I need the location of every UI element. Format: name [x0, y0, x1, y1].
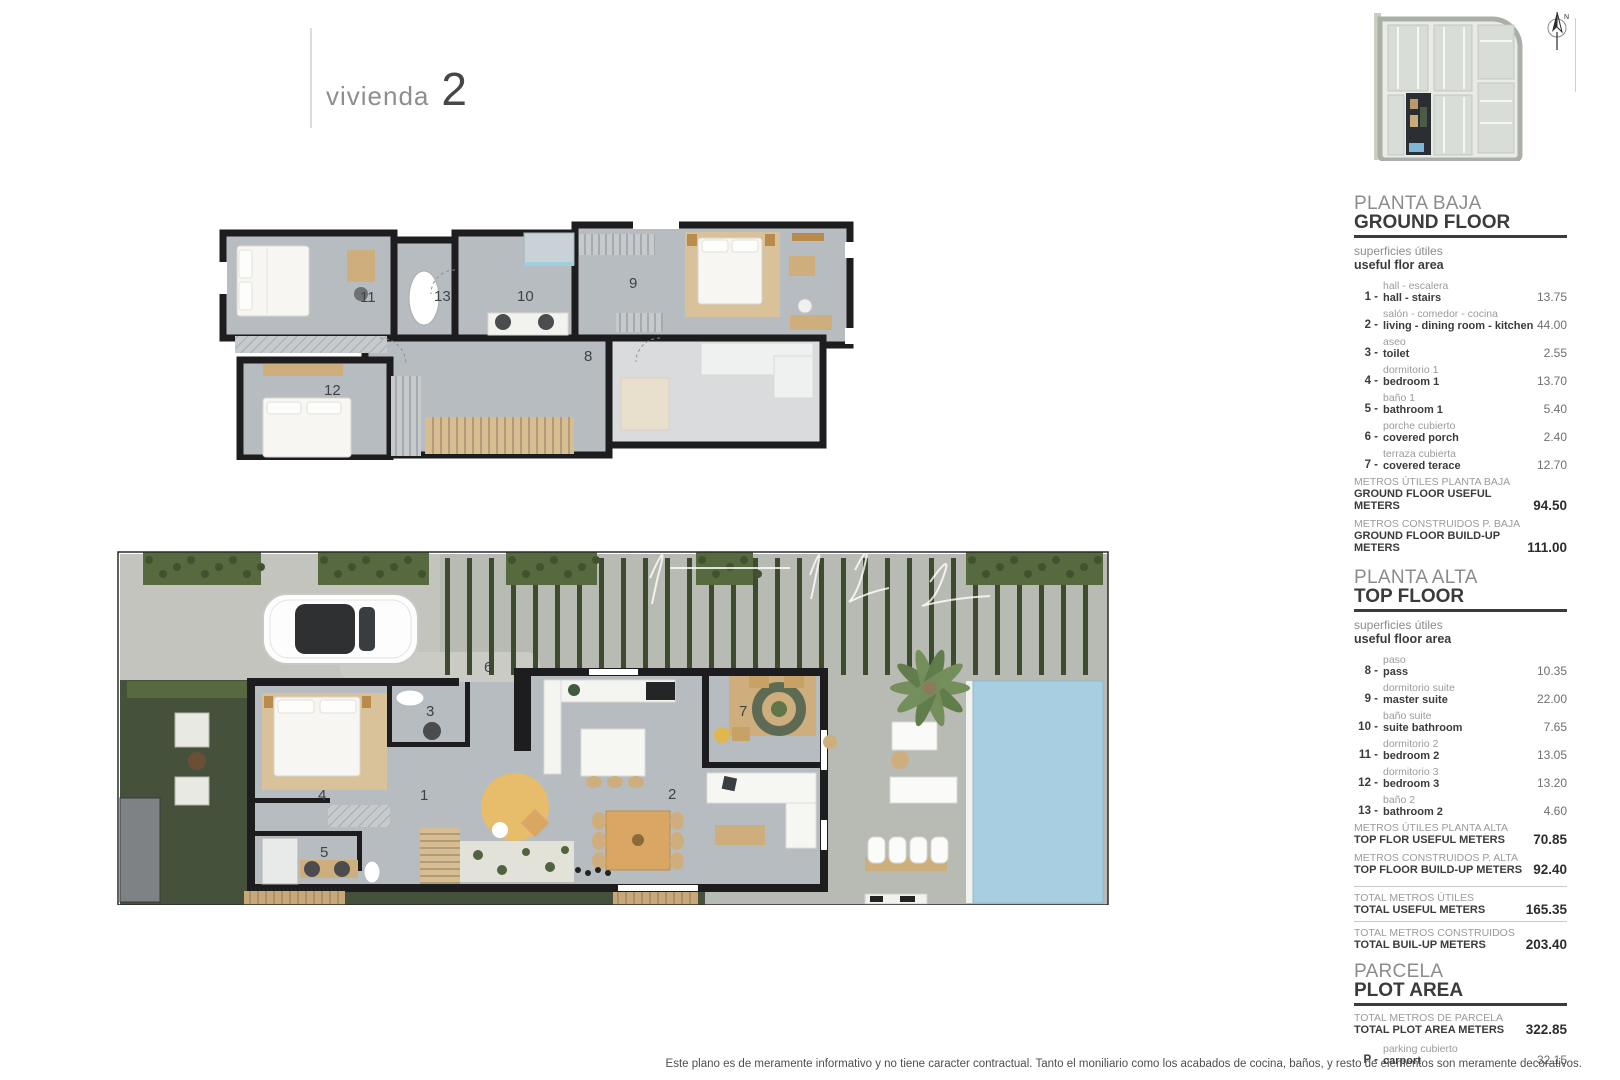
area-item-number: 4 - [1354, 375, 1383, 388]
area-total-label-en: TOP FLOOR BUILD-UP METERS [1354, 864, 1533, 876]
room-label-4: 4 [318, 787, 326, 804]
shower-glass [524, 262, 574, 266]
area-item-label-es: aseo [1383, 337, 1544, 348]
area-item-labels: dormitorio suitemaster suite [1383, 683, 1537, 706]
pouf [492, 822, 508, 838]
grand-totals: TOTAL METROS ÚTILESTOTAL USEFUL METERS16… [1354, 886, 1567, 956]
area-items: 8 -pasopass10.359 -dormitorio suitemaste… [1354, 655, 1567, 818]
area-total-row: TOTAL METROS CONSTRUIDOSTOTAL BUIL-UP ME… [1354, 921, 1567, 956]
side-rule [1575, 18, 1576, 92]
car [263, 594, 418, 664]
title-divider [310, 28, 312, 128]
area-total-label-es: METROS ÚTILES PLANTA ALTA [1354, 823, 1533, 834]
desk-chair [798, 299, 812, 313]
desk [790, 315, 832, 330]
area-item-labels: aseotoilet [1383, 337, 1544, 360]
area-item-label-es: baño 2 [1383, 795, 1544, 806]
siteplan-pool [1409, 143, 1424, 152]
wardrobe-hatch [616, 313, 663, 332]
area-item-label-es: baño 1 [1383, 393, 1544, 404]
area-total-value: 203.40 [1526, 938, 1567, 951]
area-total-row: TOTAL METROS DE PARCELATOTAL PLOT AREA M… [1354, 1013, 1567, 1036]
area-total-label-en: TOTAL BUIL-UP METERS [1354, 939, 1526, 951]
area-item-labels: pasopass [1383, 655, 1537, 678]
area-item-labels: baño suitesuite bathroom [1383, 711, 1544, 734]
area-item-label-en: living - dining room - kitchen [1383, 320, 1537, 332]
north-compass-icon: N [1543, 10, 1577, 52]
area-total-row: METROS CONSTRUIDOS P. ALTATOP FLOOR BUIL… [1354, 853, 1567, 876]
title-word: vivienda [326, 81, 429, 112]
area-items: 1 -hall - escalerahall - stairs13.752 -s… [1354, 281, 1567, 472]
area-total-label-es: TOTAL METROS CONSTRUIDOS [1354, 928, 1526, 939]
shower [524, 233, 574, 265]
area-item-value: 13.20 [1537, 777, 1567, 790]
area-item-number: 3 - [1354, 347, 1383, 360]
area-item-label-es: dormitorio 3 [1383, 767, 1537, 778]
area-item-number: 6 - [1354, 431, 1383, 444]
room-label-9: 9 [629, 275, 637, 292]
washbasin [396, 690, 424, 706]
area-item-value: 7.65 [1544, 721, 1567, 734]
hedge [127, 681, 251, 698]
area-item-row: 8 -pasopass10.35 [1354, 655, 1567, 678]
area-item-row: 4 -dormitorio 1bedroom 113.70 [1354, 365, 1567, 388]
area-item-labels: dormitorio 2bedroom 2 [1383, 739, 1537, 762]
area-total-row: METROS ÚTILES PLANTA BAJAGROUND FLOOR US… [1354, 477, 1567, 512]
area-total-labels: TOTAL METROS ÚTILESTOTAL USEFUL METERS [1354, 893, 1526, 916]
area-item-row: 13 -baño 2bathroom 24.60 [1354, 795, 1567, 818]
subtitle-en: useful floor area [1354, 632, 1567, 646]
area-item-label-es: porche cubierto [1383, 421, 1544, 432]
area-total-row: TOTAL METROS ÚTILESTOTAL USEFUL METERS16… [1354, 886, 1567, 921]
subtitle-es: superficies útiles [1354, 619, 1567, 632]
area-item-label-en: suite bathroom [1383, 722, 1544, 734]
section-rule [1354, 1003, 1567, 1006]
area-total-label-es: TOTAL METROS ÚTILES [1354, 893, 1526, 904]
area-total-label-es: METROS CONSTRUIDOS P. ALTA [1354, 853, 1533, 864]
area-item-label-en: bedroom 3 [1383, 778, 1537, 790]
stairs [425, 417, 574, 454]
bed-bedroom1 [262, 693, 387, 790]
panel-section-plot: PARCELAPLOT AREATOTAL METROS DE PARCELAT… [1354, 962, 1567, 1067]
area-total-label-en: TOTAL PLOT AREA METERS [1354, 1024, 1526, 1036]
area-item-label-es: salón - comedor - cocina [1383, 309, 1537, 320]
wardrobe-hatch [579, 234, 655, 255]
area-item-value: 5.40 [1544, 403, 1567, 416]
area-item-labels: dormitorio 3bedroom 3 [1383, 767, 1537, 790]
area-total-label-en: GROUND FLOOR BUILD-UP METERS [1354, 530, 1527, 554]
floor-plan-ground-floor: 1 2 3 4 5 6 7 [110, 530, 1110, 905]
area-item-number: 11 - [1354, 749, 1383, 762]
room-label-13: 13 [434, 288, 451, 305]
armchair [789, 256, 815, 276]
area-item-number: 2 - [1354, 319, 1383, 332]
section-subtitle: superficies útilesuseful floor area [1354, 619, 1567, 646]
area-item-label-en: covered porch [1383, 432, 1544, 444]
area-total-value: 92.40 [1533, 863, 1567, 876]
area-item-row: 12 -dormitorio 3bedroom 313.20 [1354, 767, 1567, 790]
area-item-label-en: bathroom 2 [1383, 806, 1544, 818]
area-item-label-en: bathroom 1 [1383, 404, 1544, 416]
area-total-labels: TOTAL METROS DE PARCELATOTAL PLOT AREA M… [1354, 1013, 1526, 1036]
section-subtitle: superficies útilesuseful flor area [1354, 245, 1567, 272]
garden-seat [175, 713, 209, 747]
area-item-labels: baño 2bathroom 2 [1383, 795, 1544, 818]
area-total-labels: METROS ÚTILES PLANTA BAJAGROUND FLOOR US… [1354, 477, 1533, 512]
section-totals: METROS ÚTILES PLANTA ALTATOP FLOR USEFUL… [1354, 823, 1567, 876]
area-item-row: 5 -baño 1bathroom 15.40 [1354, 393, 1567, 416]
area-total-label-es: METROS CONSTRUIDOS P. BAJA [1354, 519, 1527, 530]
section-rule [1354, 235, 1567, 238]
area-panel: PLANTA BAJAGROUND FLOORsuperficies útile… [1354, 194, 1567, 1072]
area-total-value: 165.35 [1526, 903, 1567, 916]
area-item-labels: porche cubiertocovered porch [1383, 421, 1544, 444]
area-item-label-es: dormitorio 2 [1383, 739, 1537, 750]
area-item-labels: dormitorio 1bedroom 1 [1383, 365, 1537, 388]
site-plan-thumbnail [1374, 11, 1526, 161]
area-item-label-es: dormitorio suite [1383, 683, 1537, 694]
area-item-value: 13.70 [1537, 375, 1567, 388]
area-total-label-es: METROS ÚTILES PLANTA BAJA [1354, 477, 1533, 488]
desk [347, 250, 375, 282]
garden-seat [175, 777, 209, 805]
area-item-row: 11 -dormitorio 2bedroom 213.05 [1354, 739, 1567, 762]
area-total-value: 111.00 [1527, 541, 1567, 554]
area-item-number: 9 - [1354, 693, 1383, 706]
area-total-value: 322.85 [1526, 1023, 1567, 1036]
section-title-es: PLANTA BAJA [1354, 194, 1567, 213]
area-item-row: 2 -salón - comedor - cocinaliving - dini… [1354, 309, 1567, 332]
area-item-label-en: bedroom 2 [1383, 750, 1537, 762]
area-total-labels: METROS CONSTRUIDOS P. ALTATOP FLOOR BUIL… [1354, 853, 1533, 876]
subtitle-es: superficies útiles [1354, 245, 1567, 258]
section-title-en: GROUND FLOOR [1354, 213, 1567, 232]
area-item-value: 2.55 [1544, 347, 1567, 360]
section-title-en: TOP FLOOR [1354, 587, 1567, 606]
area-total-value: 94.50 [1533, 499, 1567, 512]
area-item-number: 8 - [1354, 665, 1383, 678]
room-label-12: 12 [324, 382, 341, 399]
area-total-label-en: TOTAL USEFUL METERS [1354, 904, 1526, 916]
section-title-en: PLOT AREA [1354, 981, 1567, 1000]
area-item-label-es: dormitorio 1 [1383, 365, 1537, 376]
area-item-label-en: bedroom 1 [1383, 376, 1537, 388]
bed-master-suite [685, 232, 780, 317]
area-item-row: 7 -terraza cubiertacovered terace12.70 [1354, 449, 1567, 472]
bed-bedroom2 [237, 246, 309, 316]
room-label-11: 11 [360, 289, 376, 306]
area-item-label-en: hall - stairs [1383, 292, 1537, 304]
area-item-number: 10 - [1354, 721, 1383, 734]
section-rule [1354, 609, 1567, 612]
page-title: vivienda 2 [326, 62, 467, 116]
area-item-label-es: paso [1383, 655, 1537, 666]
room-label-1: 1 [420, 787, 428, 804]
panel-section-ground-floor: PLANTA BAJAGROUND FLOORsuperficies útile… [1354, 194, 1567, 554]
room-label-2: 2 [668, 786, 676, 803]
area-item-label-en: pass [1383, 666, 1537, 678]
subtitle-en: useful flor area [1354, 258, 1567, 272]
area-item-value: 13.75 [1537, 291, 1567, 304]
area-item-label-es: hall - escalera [1383, 281, 1537, 292]
wardrobe-hatch [328, 805, 390, 827]
pool-rim [966, 681, 973, 903]
area-item-row: 3 -aseotoilet2.55 [1354, 337, 1567, 360]
area-total-value: 70.85 [1533, 833, 1567, 846]
area-item-labels: terraza cubiertacovered terace [1383, 449, 1537, 472]
area-item-label-es: terraza cubierta [1383, 449, 1537, 460]
area-item-number: 5 - [1354, 403, 1383, 416]
sink [423, 722, 441, 740]
sink [538, 314, 554, 330]
area-item-labels: baño 1bathroom 1 [1383, 393, 1544, 416]
area-item-value: 12.70 [1537, 459, 1567, 472]
area-total-labels: METROS CONSTRUIDOS P. BAJAGROUND FLOOR B… [1354, 519, 1527, 554]
area-item-row: 9 -dormitorio suitemaster suite22.00 [1354, 683, 1567, 706]
area-item-number: 7 - [1354, 459, 1383, 472]
area-item-value: 2.40 [1544, 431, 1567, 444]
area-item-label-en: master suite [1383, 694, 1537, 706]
area-item-number: 13 - [1354, 805, 1383, 818]
stair-void-hatch [391, 376, 421, 456]
area-item-value: 4.60 [1544, 805, 1567, 818]
area-item-value: 22.00 [1537, 693, 1567, 706]
title-number: 2 [441, 62, 467, 116]
covered-terrace [714, 672, 816, 743]
room-label-10: 10 [517, 288, 534, 305]
section-title-es: PARCELA [1354, 962, 1567, 981]
wardrobe-hatch [235, 336, 387, 353]
room-label-6: 6 [484, 659, 492, 676]
sink [495, 314, 511, 330]
room-label-5: 5 [320, 844, 328, 861]
area-total-row: METROS ÚTILES PLANTA ALTATOP FLOR USEFUL… [1354, 823, 1567, 846]
area-total-row: METROS CONSTRUIDOS P. BAJAGROUND FLOOR B… [1354, 519, 1567, 554]
area-item-labels: hall - escalerahall - stairs [1383, 281, 1537, 304]
area-item-number: 12 - [1354, 777, 1383, 790]
area-item-row: 1 -hall - escalerahall - stairs13.75 [1354, 281, 1567, 304]
room-label-3: 3 [426, 703, 434, 720]
area-item-label-en: toilet [1383, 348, 1544, 360]
dining-set [592, 811, 684, 870]
stairs [420, 828, 460, 884]
area-item-value: 44.00 [1537, 319, 1567, 332]
disclaimer-text: Este plano es de meramente informativo y… [666, 1058, 1582, 1070]
area-total-label-en: TOP FLOR USEFUL METERS [1354, 834, 1533, 846]
panel-section-top-floor: PLANTA ALTATOP FLOORsuperficies útilesus… [1354, 568, 1567, 876]
siteplan-highlighted-unit [1406, 93, 1431, 155]
compass-north-label: N [1564, 14, 1569, 21]
section-title-es: PLANTA ALTA [1354, 568, 1567, 587]
area-item-label-es: parking cubierto [1383, 1044, 1537, 1055]
area-item-number: 1 - [1354, 291, 1383, 304]
plot-total: TOTAL METROS DE PARCELATOTAL PLOT AREA M… [1354, 1013, 1567, 1036]
area-total-labels: METROS ÚTILES PLANTA ALTATOP FLOR USEFUL… [1354, 823, 1533, 846]
area-item-row: 6 -porche cubiertocovered porch2.40 [1354, 421, 1567, 444]
area-item-value: 10.35 [1537, 665, 1567, 678]
area-total-labels: TOTAL METROS CONSTRUIDOSTOTAL BUIL-UP ME… [1354, 928, 1526, 951]
bench [792, 233, 824, 241]
room-label-8: 8 [584, 348, 592, 365]
floor-plan-top-floor: 11 13 10 9 8 12 [205, 210, 855, 460]
area-item-labels: salón - comedor - cocinaliving - dining … [1383, 309, 1537, 332]
garden-table [188, 752, 206, 770]
area-total-label-en: GROUND FLOOR USEFUL METERS [1354, 488, 1533, 512]
area-item-label-en: covered terace [1383, 460, 1537, 472]
area-item-label-es: baño suite [1383, 711, 1544, 722]
room-label-7: 7 [739, 703, 747, 720]
area-item-value: 13.05 [1537, 749, 1567, 762]
pool [973, 681, 1103, 903]
area-total-label-es: TOTAL METROS DE PARCELA [1354, 1013, 1526, 1024]
section-totals: METROS ÚTILES PLANTA BAJAGROUND FLOOR US… [1354, 477, 1567, 554]
area-item-row: 10 -baño suitesuite bathroom7.65 [1354, 711, 1567, 734]
entrance-gate [120, 798, 160, 902]
